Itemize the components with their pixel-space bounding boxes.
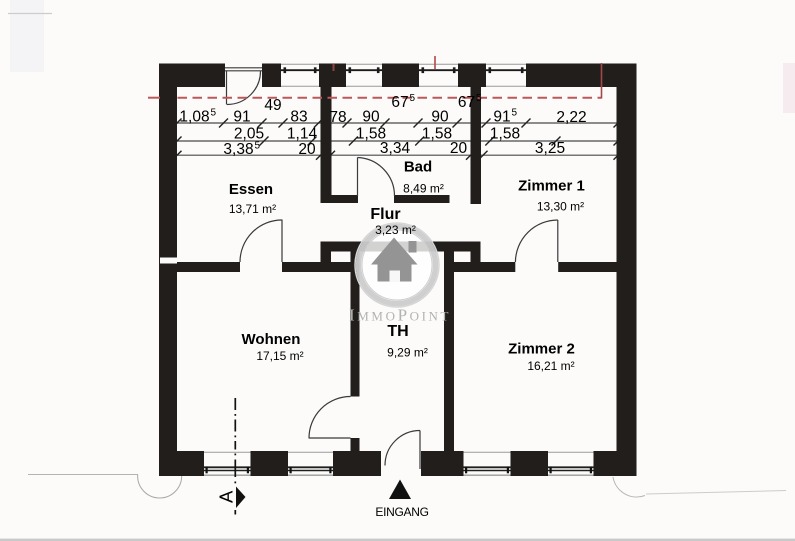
svg-text:13,71 m²: 13,71 m²	[229, 202, 276, 216]
svg-text:5: 5	[512, 108, 518, 119]
svg-text:TH: TH	[387, 323, 408, 340]
svg-text:67: 67	[458, 94, 475, 111]
svg-text:Zimmer 2: Zimmer 2	[508, 341, 575, 358]
svg-text:1,58: 1,58	[490, 126, 520, 143]
svg-text:67: 67	[391, 94, 408, 111]
svg-text:78: 78	[329, 109, 346, 126]
svg-text:Wohnen: Wohnen	[242, 331, 301, 348]
svg-text:5: 5	[410, 93, 416, 104]
svg-text:1,08: 1,08	[179, 109, 209, 126]
svg-text:5: 5	[211, 108, 217, 119]
svg-text:9,29 m²: 9,29 m²	[387, 346, 428, 360]
svg-text:A: A	[216, 490, 237, 503]
svg-text:17,15 m²: 17,15 m²	[256, 349, 303, 363]
svg-text:Zimmer 1: Zimmer 1	[518, 178, 585, 195]
svg-text:83: 83	[290, 109, 307, 126]
svg-text:3,38: 3,38	[223, 141, 253, 158]
svg-text:16,21 m²: 16,21 m²	[527, 359, 574, 373]
svg-text:13,30 m²: 13,30 m²	[537, 200, 584, 214]
svg-text:Flur: Flur	[370, 206, 400, 223]
svg-text:2,22: 2,22	[556, 109, 586, 126]
svg-text:IMMOPOINT: IMMOPOINT	[349, 306, 451, 325]
svg-text:1,58: 1,58	[422, 126, 452, 143]
svg-text:3,34: 3,34	[380, 140, 411, 157]
svg-text:91: 91	[493, 109, 510, 126]
svg-text:8,49 m²: 8,49 m²	[403, 182, 444, 196]
svg-text:3,25: 3,25	[535, 140, 565, 157]
svg-text:49: 49	[264, 97, 281, 114]
svg-text:90: 90	[362, 109, 380, 126]
svg-text:Essen: Essen	[229, 181, 273, 198]
svg-text:90: 90	[431, 109, 449, 126]
svg-text:5: 5	[476, 93, 482, 104]
svg-text:Bad: Bad	[404, 159, 432, 176]
svg-text:91: 91	[233, 109, 250, 126]
svg-text:20: 20	[450, 140, 468, 157]
svg-text:3,23 m²: 3,23 m²	[375, 223, 416, 237]
svg-text:EINGANG: EINGANG	[375, 505, 428, 519]
svg-text:5: 5	[255, 140, 261, 151]
svg-text:20: 20	[298, 141, 316, 158]
